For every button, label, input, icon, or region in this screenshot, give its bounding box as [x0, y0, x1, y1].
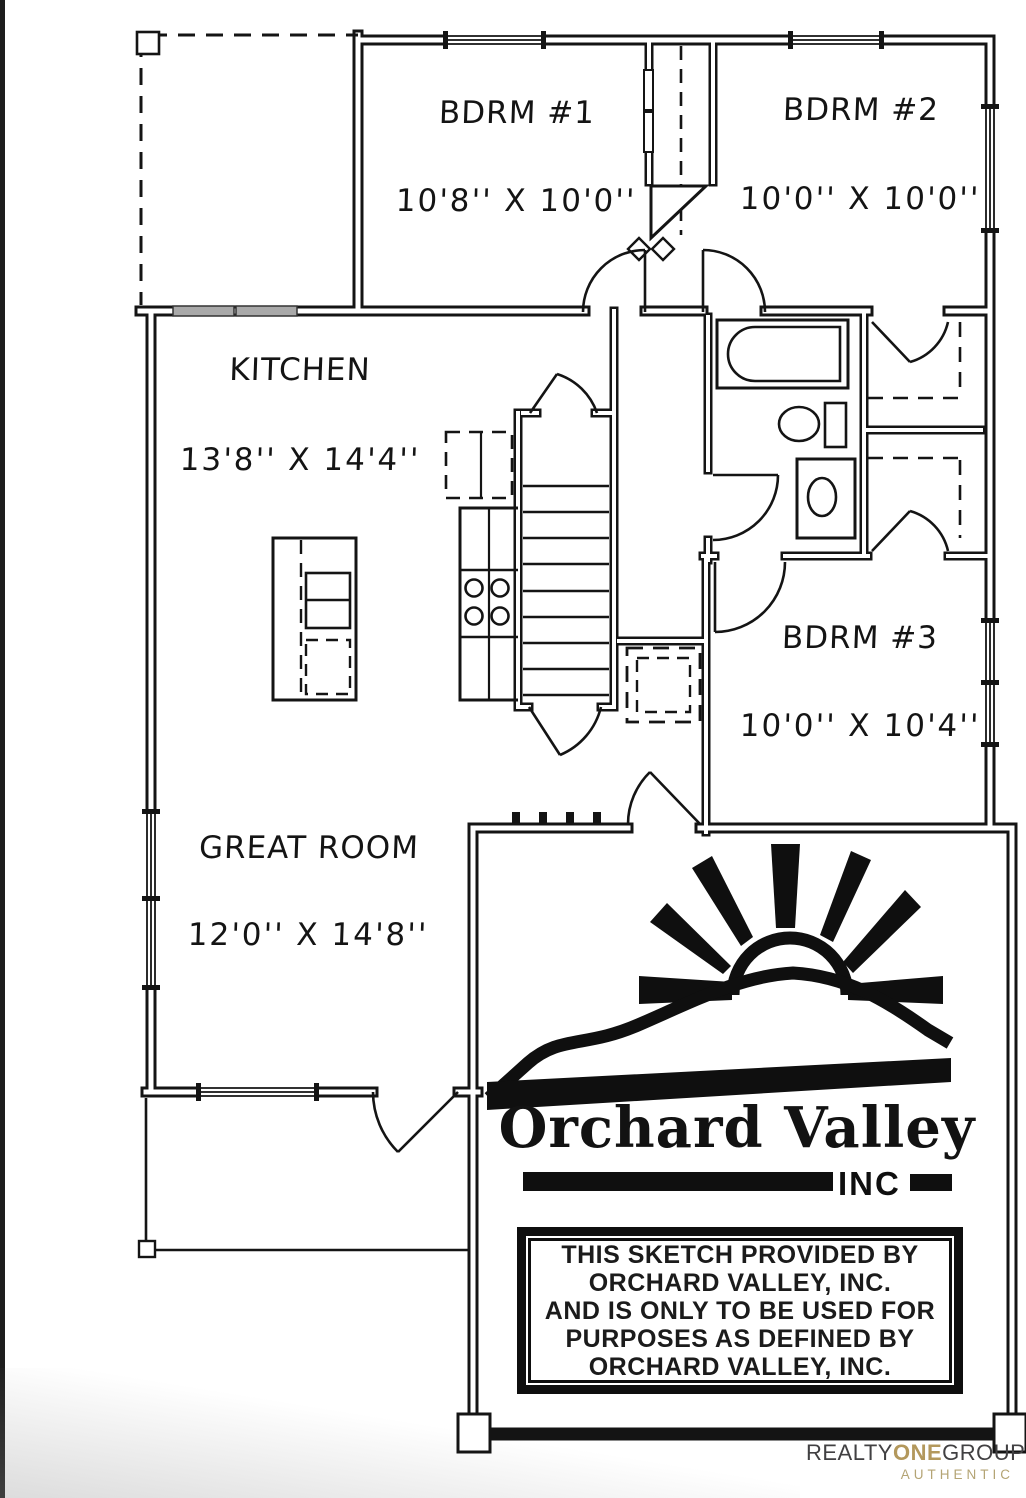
door-front-entry	[373, 1092, 458, 1152]
dishwasher	[306, 640, 350, 694]
realty-text: REALTY	[806, 1440, 893, 1465]
disclaimer-line: THIS SKETCH PROVIDED BY	[561, 1241, 918, 1269]
door-bathroom	[713, 475, 778, 540]
toilet	[779, 403, 846, 447]
window-greatroom-bottom	[196, 1083, 319, 1101]
room-label-kitchen: KITCHEN	[229, 352, 372, 388]
window-bdrm2-top	[788, 31, 884, 49]
room-label-greatroom: GREAT ROOM	[198, 830, 419, 866]
room-dims-bdrm1: 10'8'' X 10'0''	[395, 183, 637, 219]
room-dims-greatroom: 12'0'' X 14'8''	[187, 917, 429, 953]
window-bdrm1-top	[443, 31, 546, 49]
authentic-text: AUTHENTIC	[806, 1468, 1014, 1483]
porch	[139, 1098, 470, 1257]
disclaimer-line: ORCHARD VALLEY, INC.	[589, 1269, 892, 1297]
door-hall-greatroom	[628, 772, 700, 824]
room-dims-kitchen: 13'8'' X 14'4''	[179, 442, 421, 478]
sun-rays	[639, 844, 943, 1004]
realty-one-group-logo: REALTYONEGROUP AUTHENTIC	[806, 1441, 1014, 1483]
kitchen-island	[273, 538, 356, 700]
refrigerator	[446, 432, 512, 498]
window-greatroom-left	[142, 809, 160, 990]
window-bdrm2-right	[981, 104, 999, 233]
orchard-valley-sun-logo	[487, 844, 951, 1110]
door-bdrm3	[715, 562, 785, 632]
furnace-closet	[627, 648, 700, 722]
stairs	[523, 486, 609, 695]
disclaimer-line: AND IS ONLY TO BE USED FOR	[545, 1297, 935, 1325]
orchard-valley-wordmark: Orchard Valley	[499, 1095, 976, 1161]
kitchen-counter	[460, 508, 518, 700]
garage-outline	[137, 32, 358, 305]
door-stairs-top	[530, 374, 597, 413]
hall-closet	[628, 46, 706, 260]
realty-one-group-wordmark: REALTYONEGROUP	[806, 1441, 1014, 1465]
bathtub	[717, 320, 848, 388]
group-text: GROUP	[942, 1440, 1025, 1465]
room-dims-bdrm2: 10'0'' X 10'0''	[739, 181, 981, 217]
door-closet-bottom	[872, 511, 948, 551]
disclaimer-line: PURPOSES AS DEFINED BY	[565, 1325, 914, 1353]
door-bdrm1	[583, 250, 645, 312]
vanity-sink	[797, 459, 855, 538]
room-label-bdrm2: BDRM #2	[782, 92, 939, 128]
room-label-bdrm3: BDRM #3	[781, 620, 938, 656]
inc-bar-right	[910, 1174, 952, 1191]
inc-label: INC	[838, 1165, 901, 1203]
room-dims-bdrm3: 10'0'' X 10'4''	[739, 708, 981, 744]
stove	[466, 580, 509, 625]
inc-bar-left	[523, 1172, 833, 1191]
room-label-bdrm1: BDRM #1	[438, 95, 595, 131]
disclaimer-frame: THIS SKETCH PROVIDED BY ORCHARD VALLEY, …	[528, 1238, 952, 1383]
window-bdrm3-right	[981, 618, 999, 747]
door-stairs-bottom	[529, 707, 601, 755]
disclaimer-line: ORCHARD VALLEY, INC.	[589, 1353, 892, 1381]
door-closet-top	[872, 322, 948, 362]
one-text: ONE	[893, 1440, 942, 1465]
door-bdrm2	[703, 250, 765, 312]
disclaimer-box: THIS SKETCH PROVIDED BY ORCHARD VALLEY, …	[517, 1227, 963, 1394]
floor-plan-sheet: BDRM #1 10'8'' X 10'0'' BDRM #2 10'0'' X…	[0, 0, 1026, 1498]
